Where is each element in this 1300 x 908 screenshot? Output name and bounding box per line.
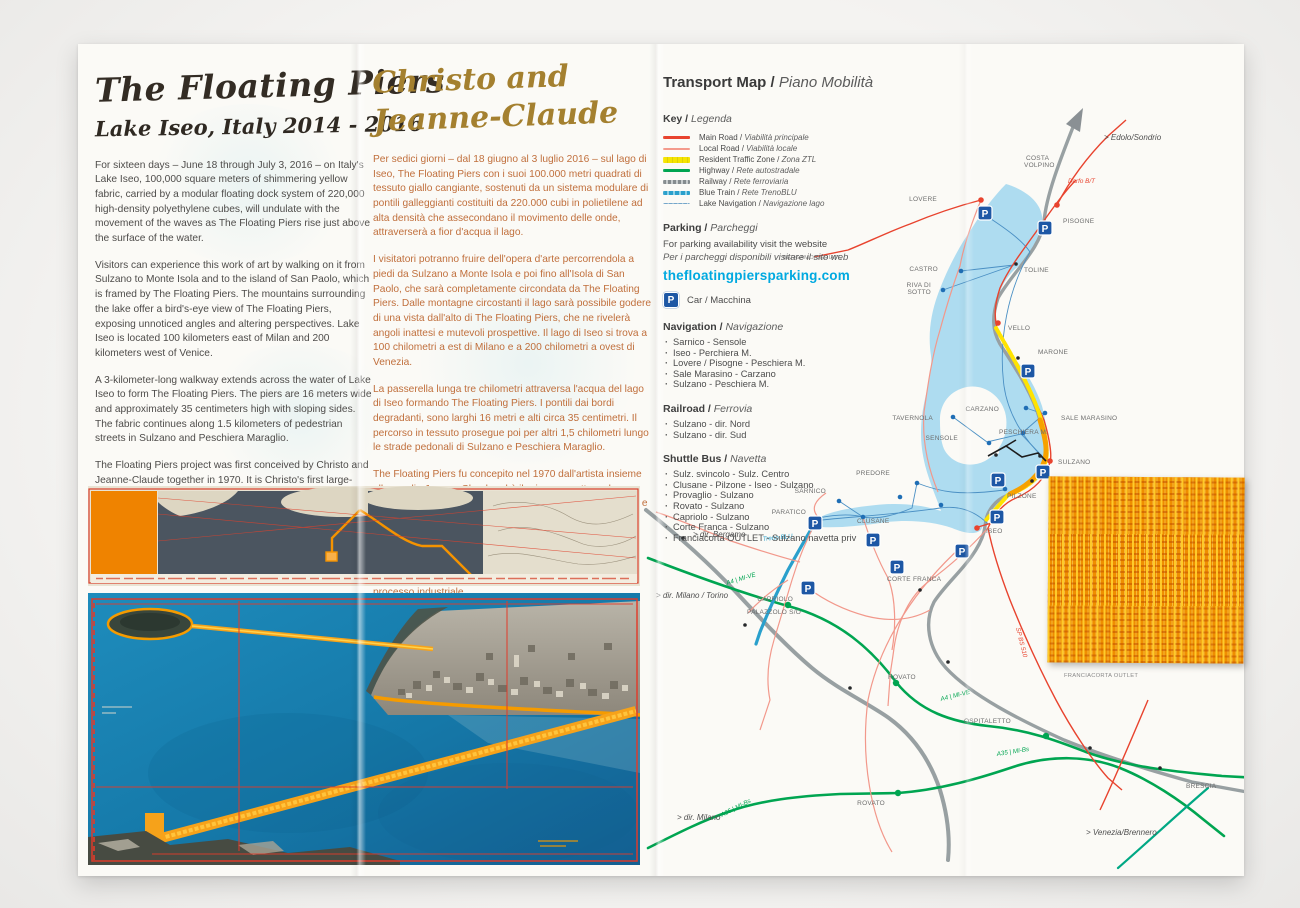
parking-icon: P	[1038, 221, 1052, 235]
green-town-dot	[893, 680, 899, 686]
list-item: Sulzano - dir. Nord	[663, 419, 1003, 430]
road-name-label: A4 | MI-VE	[725, 571, 758, 587]
road-name-label: A4 | MI-VE	[939, 689, 972, 704]
black-town-dot	[1014, 262, 1018, 266]
list-item: Franciacorta OUTLET - Sulzano navetta pr…	[663, 533, 1003, 544]
car-parking-row: P Car / Macchina	[663, 292, 1003, 308]
svg-text:P: P	[1025, 367, 1032, 378]
map-label: ROVATO	[888, 674, 916, 681]
list-item: Rovato - Sulzano	[663, 501, 1003, 512]
parking-info-it: Per i parcheggi disponibili visitare il …	[663, 252, 1003, 263]
shuttle-heading: Shuttle Bus / Navetta	[663, 453, 1003, 465]
black-town-dot	[848, 686, 852, 690]
drawing-fabric-sample	[91, 491, 157, 581]
green-town-dot	[895, 790, 901, 796]
railroad-routes-list: Sulzano - dir. NordSulzano - dir. Sud	[663, 419, 1003, 440]
orange-fabric-swatch	[1047, 476, 1244, 663]
black-town-dot	[743, 623, 747, 627]
paragraph: Per sedici giorni – dal 18 giugno al 3 l…	[373, 153, 653, 241]
san-paolo-island-photo	[108, 609, 192, 639]
svg-text:P: P	[1040, 468, 1047, 479]
red-town-dot	[1054, 202, 1060, 208]
map-legend: Main Road / Viabilità principale Local R…	[663, 132, 1003, 209]
map-label: PISOGNE	[1063, 218, 1095, 225]
map-label: COSTA	[1026, 155, 1050, 162]
black-town-dot	[1016, 356, 1020, 360]
main-road-line-swatch	[663, 136, 690, 139]
black-town-dot	[1158, 766, 1162, 770]
parking-icon: P	[801, 581, 815, 595]
list-item: Provaglio - Sulzano	[663, 490, 1003, 501]
map-label: VOLPINO	[1024, 162, 1055, 169]
paragraph: I visitatori potranno fruire dell'opera …	[373, 253, 653, 371]
map-label: PALAZZOLO S/O	[747, 609, 801, 616]
blue-train-line-swatch	[663, 191, 690, 195]
transport-info-column: Transport Map / Piano Mobilità Key / Leg…	[663, 74, 1003, 543]
blue-town-dot	[1024, 406, 1029, 411]
railway-arrow-edolo	[1066, 108, 1083, 132]
road-name-label: A35 | MI-Bs	[719, 797, 753, 819]
list-item: Capriolo - Sulzano	[663, 512, 1003, 523]
navigation-routes-list: Sarnico - SensoleIseo - Perchiera M.Love…	[663, 337, 1003, 390]
black-town-dot	[1038, 454, 1042, 458]
parking-info-en: For parking availability visit the websi…	[663, 239, 1003, 250]
parking-icon: P	[1021, 364, 1035, 378]
floating-piers-collage-photo	[88, 593, 640, 865]
list-item: Sulzano - dir. Sud	[663, 430, 1003, 441]
map-label: BRESCIA	[1186, 783, 1217, 790]
ztl-line-swatch	[663, 157, 690, 163]
list-item: Lovere / Pisogne - Peschiera M.	[663, 358, 1003, 369]
legend-row-local-road: Local Road / Viabilità locale	[663, 143, 1003, 154]
svg-text:P: P	[805, 584, 812, 595]
list-item: Sarnico - Sensole	[663, 337, 1003, 348]
map-label: FRANCIACORTA OUTLET	[1064, 673, 1138, 679]
paragraph: For sixteen days – June 18 through July …	[95, 159, 373, 247]
legend-row-highway: Highway / Rete autostradale	[663, 165, 1003, 176]
list-item: Sulzano - Peschiera M.	[663, 379, 1003, 390]
legend-row-railway: Railway / Rete ferroviaria	[663, 176, 1003, 187]
map-label: SULZANO	[1058, 459, 1090, 466]
map-label: ROVATO	[857, 800, 885, 807]
legend-row-ztl: Resident Traffic Zone / Zona ZTL	[663, 154, 1003, 165]
christo-preparatory-drawing	[88, 486, 640, 586]
map-label: VELLO	[1008, 325, 1030, 332]
list-item: Sale Marasino - Carzano	[663, 369, 1003, 380]
svg-text:P: P	[959, 547, 966, 558]
parking-icon: P	[890, 560, 904, 574]
map-label: CAPRIOLO	[757, 596, 793, 603]
black-town-dot	[918, 588, 922, 592]
legend-row-lake-navigation: Lake Navigation / Navigazione lago	[663, 198, 1003, 209]
black-town-dot	[946, 660, 950, 664]
map-label: PILZONE	[1007, 493, 1037, 500]
transport-map-title: Transport Map / Piano Mobilità	[663, 74, 1003, 91]
map-direction-label: > dir. Milano / Torino	[656, 591, 729, 600]
black-town-dot	[1088, 746, 1092, 750]
blue-town-dot	[1021, 431, 1026, 436]
parking-heading: Parking / Parcheggi	[663, 222, 1003, 234]
list-item: Corte Franca - Sulzano	[663, 522, 1003, 533]
car-label: Car / Macchina	[687, 295, 751, 306]
map-label: MARONE	[1038, 349, 1068, 356]
navigation-heading: Navigation / Navigazione	[663, 321, 1003, 333]
road-name-label: SP BS 510	[1014, 627, 1028, 659]
map-label: SALE MARASINO	[1061, 415, 1117, 422]
svg-text:P: P	[894, 563, 901, 574]
paragraph: Visitors can experience this work of art…	[95, 259, 373, 362]
map-direction-label: > Venezia/Brennero	[1086, 828, 1157, 837]
railroad-heading: Railroad / Ferrovia	[663, 403, 1003, 415]
list-item: Iseo - Perchiera M.	[663, 348, 1003, 359]
map-direction-label: > dir. Milano	[677, 813, 721, 822]
parking-icon: P	[663, 292, 679, 308]
brochure-paper: COSTAVOLPINOLOVEREPISOGNECASTRORIVA DISO…	[78, 44, 1244, 876]
map-label: OSPITALETTO	[964, 718, 1011, 725]
road-name-label: Darfo B/T	[1068, 178, 1096, 185]
green-town-dot	[1043, 733, 1049, 739]
local-road-line-swatch	[663, 148, 690, 150]
map-direction-label: > Edolo/Sondrio	[1104, 133, 1162, 142]
green-town-dot	[785, 602, 791, 608]
list-item: Sulz. svincolo - Sulz. Centro	[663, 469, 1003, 480]
highway-line-swatch	[663, 169, 690, 172]
paragraph: La passerella lunga tre chilometri attra…	[373, 383, 653, 456]
svg-text:P: P	[1042, 224, 1049, 235]
shuttle-routes-list: Sulz. svincolo - Sulz. CentroClusane - P…	[663, 469, 1003, 543]
page-subtitle: Lake Iseo, Italy 2014 - 2016	[95, 111, 373, 141]
artists-title: Christo and Jeanne-Claude	[372, 55, 654, 140]
blue-town-dot	[1043, 411, 1048, 416]
blue-town-dot	[1003, 487, 1008, 492]
red-town-dot	[1047, 458, 1053, 464]
page-title: The Floating Piers	[95, 66, 374, 108]
list-item: Clusane - Pilzone - Iseo - Sulzano	[663, 480, 1003, 491]
map-label: TOLINE	[1024, 267, 1049, 274]
map-label: PESCHIERA M.	[999, 429, 1048, 436]
legend-row-main-road: Main Road / Viabilità principale	[663, 132, 1003, 143]
railway-line-swatch	[663, 180, 690, 184]
black-town-dot	[1030, 479, 1034, 483]
legend-row-blue-train: Blue Train / Rete TrenoBLU	[663, 187, 1003, 198]
lake-navigation-line-swatch	[663, 203, 690, 204]
parking-website-url: thefloatingpiersparking.com	[663, 268, 1003, 283]
map-label: CORTE FRANCA	[887, 576, 942, 583]
parking-icon: P	[955, 544, 969, 558]
road-name-label: A35 | MI-Bs	[995, 746, 1030, 758]
key-heading: Key / Legenda	[663, 113, 1003, 125]
paragraph: A 3-kilometer-long walkway extends acros…	[95, 374, 373, 447]
